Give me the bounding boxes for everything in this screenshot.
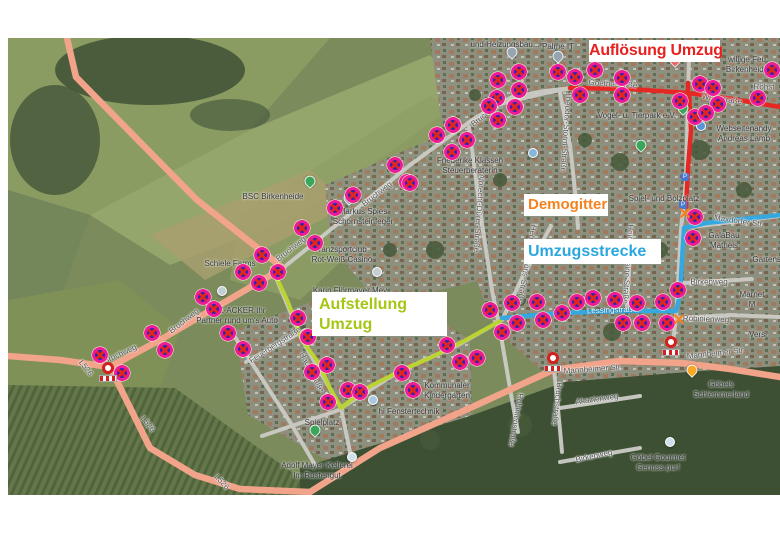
closure-barrier-icon [99,375,117,382]
no-stopping-sign-marker[interactable] [494,324,510,340]
no-stopping-sign-marker[interactable] [206,301,222,317]
annotation-aufloesung-umzug: Auflösung Umzug [589,40,720,62]
no-stopping-sign-marker[interactable] [535,312,551,328]
street-name-label: Theodor-Storm-Straße [559,92,574,173]
no-stopping-sign-marker[interactable] [482,302,498,318]
no-stopping-sign-marker[interactable] [698,105,714,121]
place-label: BSC Birkenheide [243,192,304,202]
no-stopping-sign-marker[interactable] [509,315,525,331]
no-stopping-sign-marker[interactable] [511,64,527,80]
no-stopping-sign-marker[interactable] [352,384,368,400]
no-stopping-sign-marker[interactable] [490,72,506,88]
place-label: Spiel- und Bolzplatz [629,194,700,204]
street-name-label: Bruchweg [360,180,394,209]
no-stopping-sign-marker[interactable] [251,275,267,291]
no-stopping-sign-marker[interactable] [655,294,671,310]
no-stopping-sign-marker[interactable] [685,230,701,246]
place-label: Göbels Schlemmerland [692,380,751,400]
street-name-label: Feuerbergstraße [248,325,303,365]
street-name-label: Maxdorfer Str. [713,213,764,229]
annotation-line2: Umzug [319,315,447,335]
parking-sign-icon: P [681,173,689,181]
map-pin-icon[interactable] [368,395,378,405]
closure-ring-icon [547,352,559,364]
place-label: hi Fenstertechnik [379,407,440,417]
street-name-label: L526 [213,472,232,491]
place-label: und Heizungsbau... [471,40,540,50]
no-stopping-sign-marker[interactable] [304,364,320,380]
no-stopping-sign-marker[interactable] [507,99,523,115]
no-stopping-sign-marker[interactable] [444,144,460,160]
no-stopping-sign-marker[interactable] [345,187,361,203]
no-stopping-sign-marker[interactable] [235,264,251,280]
closure-barrier-icon [544,365,562,372]
place-label: Kommunaler Kindergarten [424,381,470,401]
no-stopping-sign-marker[interactable] [629,295,645,311]
no-stopping-sign-marker[interactable] [672,93,688,109]
no-stopping-sign-marker[interactable] [405,382,421,398]
street-name-label: Albrecht-Dürer-Straße [472,173,486,252]
no-stopping-sign-marker[interactable] [235,341,251,357]
map-pin-icon[interactable] [372,267,382,277]
street-name-label: Goethestraße [588,78,637,90]
place-label: willige Feu Birkenheide [726,55,768,75]
no-stopping-sign-marker[interactable] [429,127,445,143]
annotation-umzugsstrecke: Umzugsstrecke [524,239,661,264]
no-stopping-sign-marker[interactable] [529,294,545,310]
place-label: Adolf Mayer Kellerei Im Rustengut [281,461,353,481]
place-label: Webseitenandy Andreas Lamb [717,124,772,144]
no-stopping-sign-marker[interactable] [270,264,286,280]
no-stopping-sign-marker[interactable] [607,292,623,308]
no-stopping-sign-marker[interactable] [490,112,506,128]
map-pin-icon[interactable] [302,173,318,189]
map-overlay: GoethestraßeWaldstraßeTheodor-Storm-Stra… [8,38,780,495]
road-closure-marker[interactable] [99,362,117,382]
no-stopping-sign-marker[interactable] [585,290,601,306]
no-stopping-sign-marker[interactable] [387,157,403,173]
no-stopping-sign-marker[interactable] [459,132,475,148]
annotation-line1: Aufstellung [319,295,447,315]
place-label: Versi [749,330,767,340]
map-pin-icon[interactable] [684,362,700,378]
no-stopping-sign-marker[interactable] [587,62,603,78]
no-stopping-sign-marker[interactable] [705,80,721,96]
no-stopping-sign-marker[interactable] [469,350,485,366]
no-stopping-sign-marker[interactable] [614,87,630,103]
no-stopping-sign-marker[interactable] [615,315,631,331]
street-name-label: Robinienstraße [507,393,525,448]
no-stopping-sign-marker[interactable] [567,69,583,85]
no-stopping-sign-marker[interactable] [327,200,343,216]
no-stopping-sign-marker[interactable] [750,90,766,106]
annotation-demogitter: Demogitter [524,194,608,216]
street-name-label: Robinienweg [683,314,730,325]
no-stopping-sign-marker[interactable] [634,315,650,331]
no-stopping-sign-marker[interactable] [319,357,335,373]
map-pin-icon[interactable] [217,286,227,296]
street-name-label: L526 [139,414,157,434]
no-stopping-sign-marker[interactable] [439,337,455,353]
no-stopping-sign-marker[interactable] [511,82,527,98]
closure-ring-icon [665,336,677,348]
no-stopping-sign-marker[interactable] [290,310,306,326]
street-name-label: Hermann-Löns-Straße [516,224,539,304]
no-stopping-sign-marker[interactable] [157,342,173,358]
demogitter-x-marker[interactable]: ✕ [678,207,691,223]
satellite-map[interactable]: GoethestraßeWaldstraßeTheodor-Storm-Stra… [8,38,780,495]
street-name-label: Akazienweg [575,392,619,407]
street-name-label: Bruchstraße [550,382,564,426]
road-closure-marker[interactable] [544,352,562,372]
no-stopping-sign-marker[interactable] [394,365,410,381]
no-stopping-sign-marker[interactable] [572,87,588,103]
no-stopping-sign-marker[interactable] [550,64,566,80]
screenshot-page: { "annotations": { "aufloesung": {"label… [0,0,780,552]
no-stopping-sign-marker[interactable] [307,235,323,251]
no-stopping-sign-marker[interactable] [764,62,780,78]
no-stopping-sign-marker[interactable] [144,325,160,341]
street-name-label: Birkenweg [575,448,613,465]
map-pin-icon[interactable] [665,437,675,447]
annotation-aufstellung-umzug: Aufstellung Umzug [312,292,447,336]
no-stopping-sign-marker[interactable] [452,354,468,370]
street-name-label: L526 [77,358,95,378]
no-stopping-sign-marker[interactable] [670,282,686,298]
closure-barrier-icon [662,349,680,356]
no-stopping-sign-marker[interactable] [614,70,630,86]
no-stopping-sign-marker[interactable] [320,394,336,410]
no-stopping-sign-marker[interactable] [445,117,461,133]
street-name-label: Heinrich-Heine-Straße [621,224,636,304]
place-label: Friederike Klassen Steuerberaterin [437,156,503,176]
street-name-label: Birkenweg [690,278,727,287]
no-stopping-sign-marker[interactable] [254,247,270,263]
place-label: Göbel Gourmet Genuss pur! [631,453,686,473]
no-stopping-sign-marker[interactable] [554,305,570,321]
map-pin-icon[interactable] [347,452,357,462]
place-label: Marnet M [738,290,766,310]
road-closure-marker[interactable] [662,336,680,356]
street-name-label: Bruchweg [274,235,308,264]
no-stopping-sign-marker[interactable] [294,220,310,236]
place-label: GalaBau Matheis [696,231,752,251]
no-stopping-sign-marker[interactable] [504,295,520,311]
no-stopping-sign-marker[interactable] [402,175,418,191]
no-stopping-sign-marker[interactable] [220,325,236,341]
place-label: Gartenstraße [752,255,780,265]
street-name-label: Mannheimer Str. [686,345,745,360]
place-label: Vogel- u. Tierpark e.V. [598,111,676,121]
demogitter-x-marker[interactable]: ✕ [672,313,685,329]
no-stopping-sign-marker[interactable] [569,294,585,310]
closure-ring-icon [102,362,114,374]
street-name-label: Mannheimer Str. [563,362,622,375]
map-pin-icon[interactable] [528,148,538,158]
no-stopping-sign-marker[interactable] [92,347,108,363]
map-pin-icon[interactable] [633,137,649,153]
